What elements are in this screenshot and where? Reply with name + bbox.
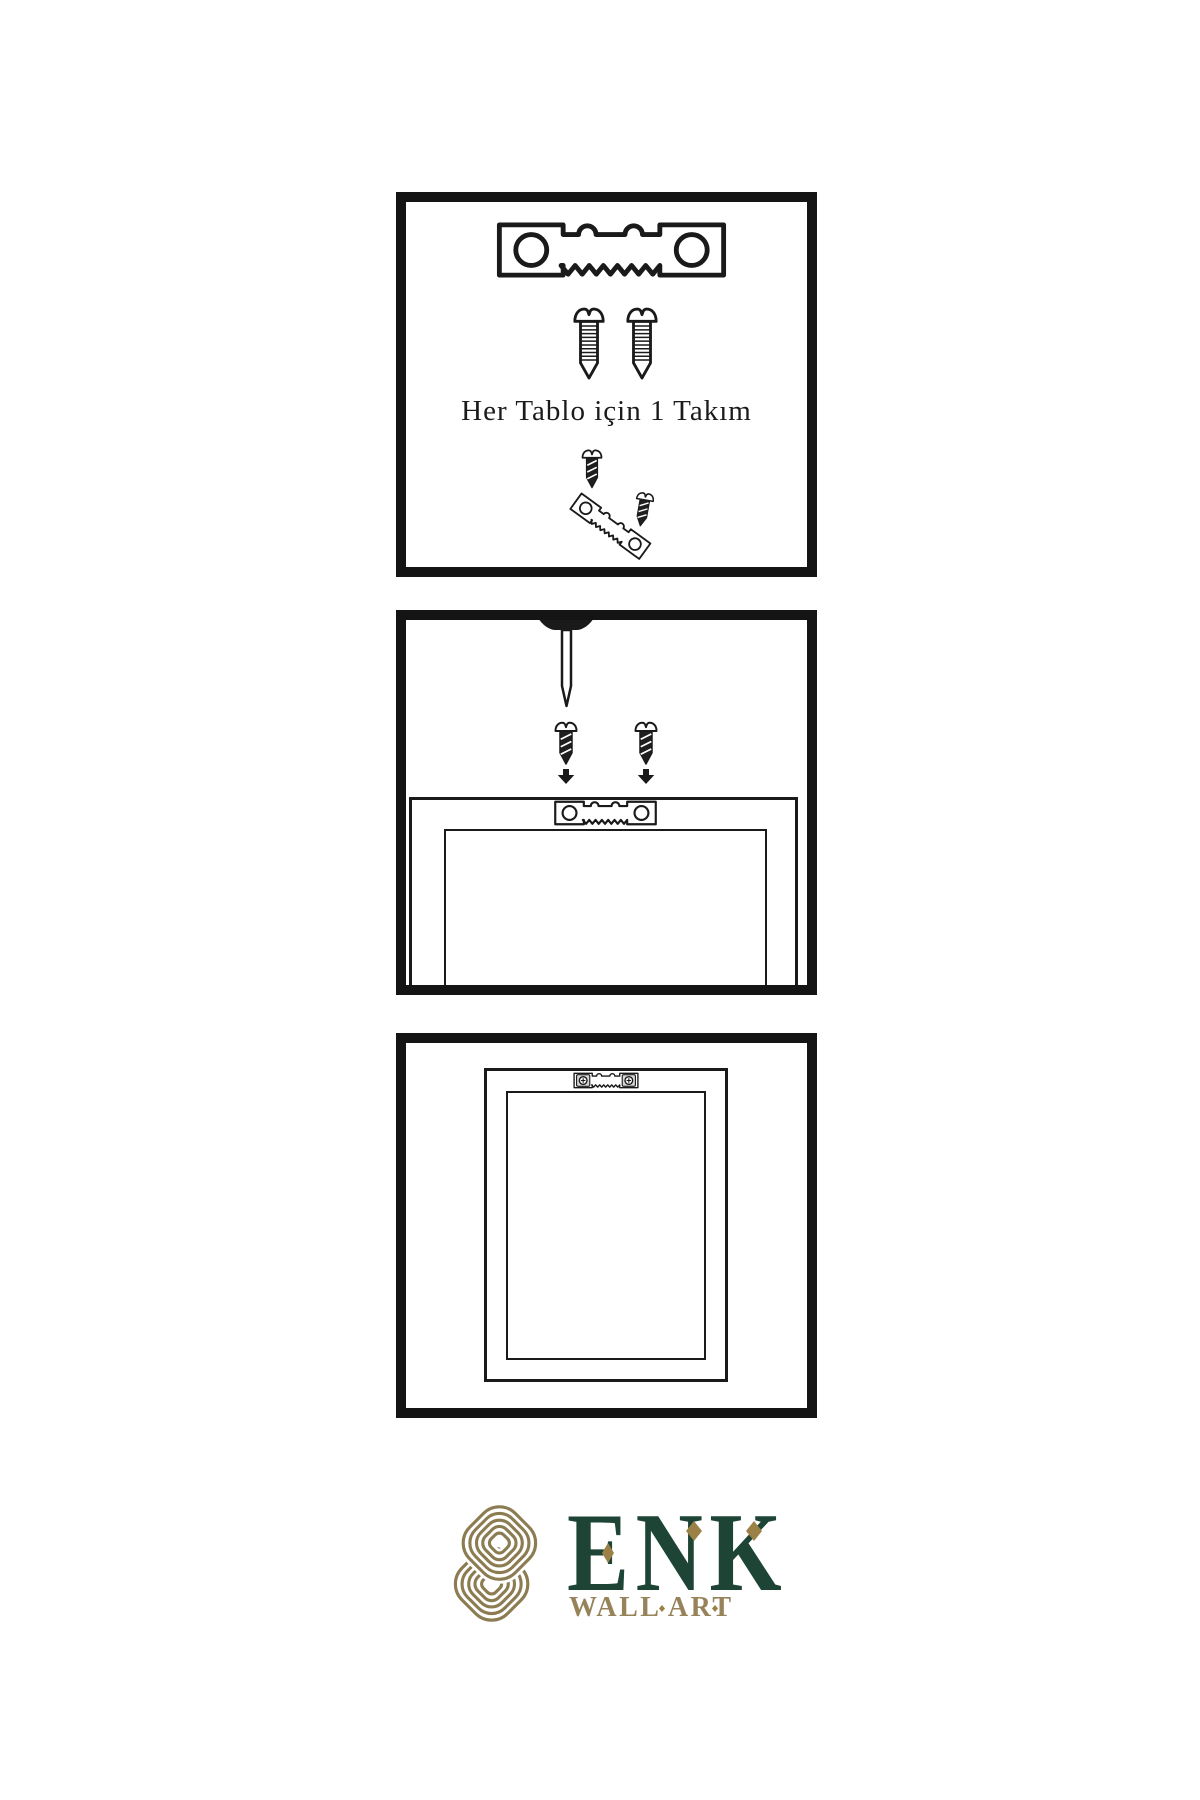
screw-icon: [572, 306, 606, 382]
panel-mounting-inner: [406, 620, 807, 985]
frame-back-inner: [444, 829, 767, 995]
dark-screw-icon: [554, 721, 578, 768]
sawtooth-hanger-icon: [553, 800, 658, 826]
panel-kit-inner: Her Tablo için 1 Takım: [406, 202, 807, 567]
arrow-down-icon: [557, 768, 575, 785]
sawtooth-hanger-icon: [495, 221, 728, 279]
kit-caption: Her Tablo için 1 Takım: [400, 395, 813, 428]
dark-screw-icon: [630, 491, 656, 531]
mounted-sawtooth-hanger-icon: [573, 1071, 639, 1090]
frame-inner: [506, 1091, 706, 1360]
panel-kit-contents: Her Tablo için 1 Takım: [396, 192, 817, 577]
arrow-down-icon: [637, 768, 655, 785]
panel-hung-inner: [406, 1043, 807, 1408]
interlocking-knot-icon: [437, 1497, 554, 1632]
brand-subtitle: WALL ART: [569, 1594, 734, 1622]
screw-driving-icon: [581, 449, 603, 491]
instruction-sheet: Her Tablo için 1 Takım ENK: [0, 0, 1200, 1800]
panel-hung-frame: [396, 1033, 817, 1418]
panel-mounting-step: [396, 610, 817, 995]
wall-nail-icon: [538, 618, 594, 718]
screw-icon: [625, 306, 659, 382]
dark-screw-icon: [634, 721, 658, 768]
